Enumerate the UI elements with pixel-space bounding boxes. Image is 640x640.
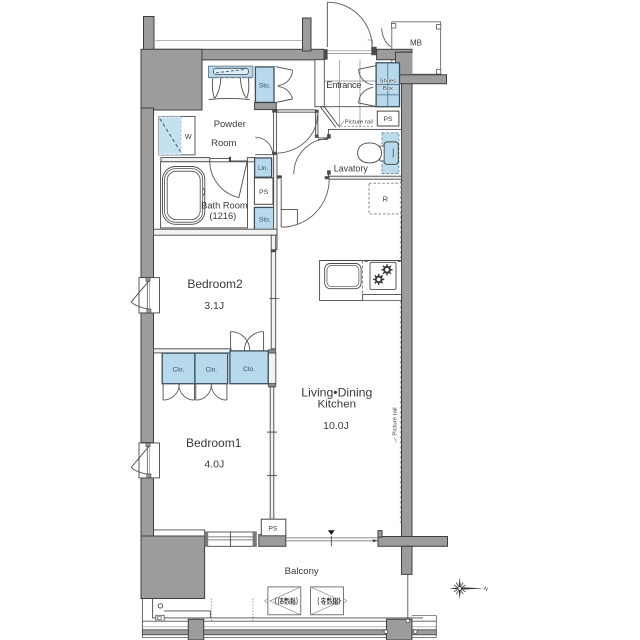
svg-text:PS: PS — [259, 189, 269, 196]
svg-text:PS: PS — [383, 116, 393, 123]
svg-text:Box: Box — [383, 86, 393, 92]
svg-text:10.0J: 10.0J — [323, 420, 349, 432]
svg-text:R: R — [383, 195, 389, 204]
svg-text:Bedroom1: Bedroom1 — [186, 436, 242, 450]
svg-text:Room: Room — [211, 138, 236, 149]
svg-text:Kitchen: Kitchen — [318, 399, 357, 411]
svg-text:Clo.: Clo. — [173, 367, 185, 374]
svg-text:Powder: Powder — [214, 119, 246, 130]
svg-text:(1216): (1216) — [209, 211, 236, 221]
svg-text:Entrance: Entrance — [326, 80, 361, 91]
svg-text:PS: PS — [268, 526, 278, 533]
svg-text:Picture rail: Picture rail — [392, 407, 398, 435]
svg-text:Bath Room: Bath Room — [201, 201, 248, 211]
svg-text:Bedroom2: Bedroom2 — [187, 277, 243, 291]
svg-text:Picture rail: Picture rail — [345, 120, 373, 126]
svg-text:4.0J: 4.0J — [204, 458, 224, 470]
svg-text:3.1J: 3.1J — [204, 300, 224, 312]
svg-text:Living•Dining: Living•Dining — [301, 385, 372, 399]
svg-text:Clo.: Clo. — [206, 367, 218, 374]
svg-text:Clo.: Clo. — [243, 366, 255, 373]
svg-text:Shoes: Shoes — [380, 79, 397, 85]
svg-text:Lin.: Lin. — [258, 165, 269, 172]
svg-text:W: W — [185, 132, 192, 141]
svg-text:MB: MB — [410, 38, 422, 47]
svg-text:Balcony: Balcony — [285, 566, 319, 576]
svg-text:Sto.: Sto. — [259, 216, 271, 223]
svg-text:Sto.: Sto. — [259, 82, 271, 89]
svg-text:Lavatory: Lavatory — [334, 164, 368, 174]
